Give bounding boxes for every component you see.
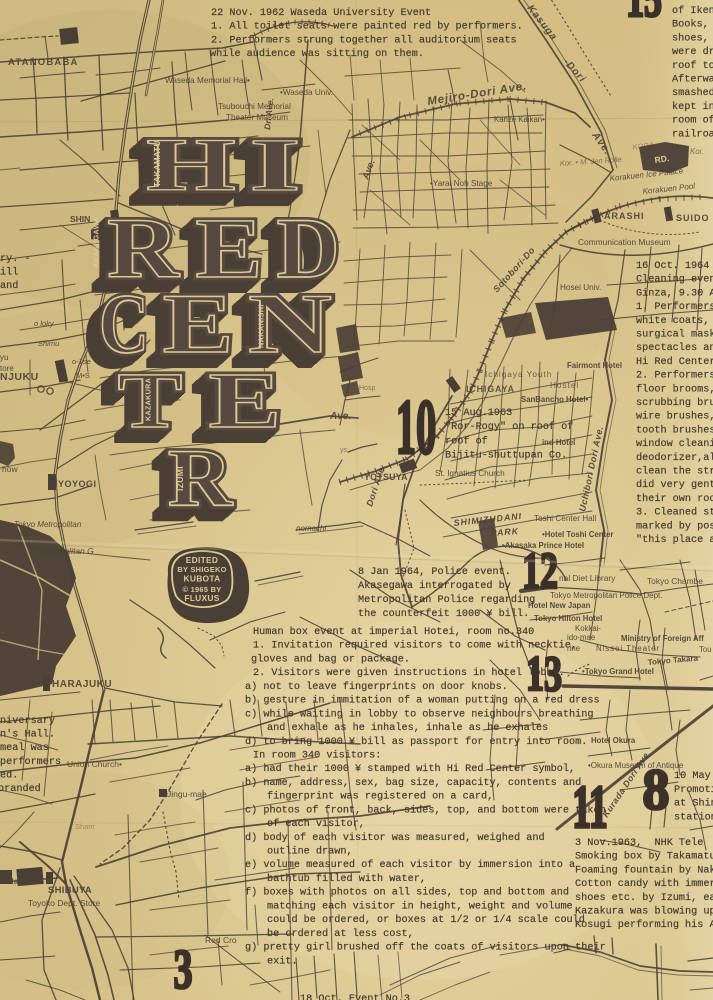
svg-text:IZUMI: IZUMI: [175, 466, 185, 491]
svg-text:o loky: o loky: [34, 319, 55, 328]
svg-text:Toshi Center Hall: Toshi Center Hall: [534, 514, 597, 523]
svg-text:yu: yu: [0, 353, 8, 362]
svg-text:3: 3: [173, 939, 192, 1000]
svg-text:I: I: [249, 124, 301, 206]
svg-text:ARASHI: ARASHI: [604, 211, 645, 221]
svg-text:FLUXUS: FLUXUS: [184, 593, 219, 603]
svg-text:HARAJUKU: HARAJUKU: [52, 679, 112, 690]
svg-text:Union Church•: Union Church•: [67, 759, 122, 769]
svg-text:Tokyo Metropolitan: Tokyo Metropolitan: [14, 520, 82, 529]
svg-text:YOTSUYA: YOTSUYA: [364, 472, 408, 482]
svg-text:ATANOBABA: ATANOBABA: [8, 57, 79, 68]
svg-text:Nissei Theater: Nissei Theater: [596, 644, 660, 653]
svg-text:Hostel: Hostel: [550, 381, 579, 390]
svg-text:ind Hotel: ind Hotel: [542, 438, 575, 447]
svg-text:SanBancho Hotel•: SanBancho Hotel•: [521, 395, 589, 404]
svg-text:E: E: [209, 357, 282, 445]
svg-text:C: C: [99, 276, 149, 371]
svg-text:KAZAKURA: KAZAKURA: [144, 378, 153, 421]
svg-text:Fairmont Hotel: Fairmont Hotel: [567, 361, 622, 370]
svg-text:NJUKU: NJUKU: [0, 371, 39, 383]
svg-text:12: 12: [522, 541, 558, 599]
svg-text:YOYOGI: YOYOGI: [58, 479, 97, 489]
svg-text:Tsubouchi Memorial: Tsubouchi Memorial: [218, 102, 291, 111]
svg-text:Ministry of Foreign Aff: Ministry of Foreign Aff: [621, 634, 704, 643]
svg-text:Waseda Memorial Hall•: Waseda Memorial Hall•: [165, 76, 250, 85]
svg-text:o Har 8: o Har 8: [0, 876, 29, 886]
svg-text:Tokyo Hilton Hotel: Tokyo Hilton Hotel: [534, 614, 602, 623]
svg-text:PARK: PARK: [490, 526, 519, 538]
svg-text:useum: useum: [14, 529, 38, 538]
svg-text:15: 15: [626, 0, 662, 28]
svg-text:•Hotel Toshi Center: •Hotel Toshi Center: [542, 530, 613, 539]
svg-text:Ichigaya Youth: Ichigaya Youth: [485, 370, 552, 379]
svg-text:Hosei Univ.: Hosei Univ.: [560, 283, 601, 292]
svg-text:10: 10: [396, 385, 437, 470]
svg-text:ICHIGAYA: ICHIGAYA: [466, 384, 515, 394]
svg-text:TAKAMATU: TAKAMATU: [153, 140, 162, 187]
svg-text:Tou: Tou: [699, 645, 712, 654]
svg-text:•Waseda Univ.: •Waseda Univ.: [280, 88, 333, 97]
svg-text:nal Diet Library: nal Diet Library: [559, 573, 616, 583]
svg-text:Red Cro: Red Cro: [205, 935, 237, 945]
svg-text:KUBOTA: KUBOTA: [184, 574, 221, 584]
svg-text:EDITED: EDITED: [186, 555, 219, 565]
svg-text:Tokyo Metropolitan Police Dept: Tokyo Metropolitan Police Dept.: [550, 591, 663, 600]
svg-text:Kor.: Kor.: [690, 147, 704, 156]
svg-text:Communication Museum: Communication Museum: [578, 237, 671, 247]
svg-text:AKASEGAWA: AKASEGAWA: [92, 216, 101, 268]
svg-text:Jingu-mae: Jingu-mae: [167, 789, 207, 799]
svg-text:RD.: RD.: [654, 153, 670, 165]
svg-text:St. Ignatius Church: St. Ignatius Church: [435, 469, 505, 478]
svg-text:Sham: Sham: [75, 822, 95, 831]
svg-text:•Yarai Noh Stage: •Yarai Noh Stage: [430, 179, 493, 188]
svg-text:ys: ys: [340, 447, 348, 454]
svg-text:8: 8: [643, 758, 670, 822]
svg-text:Shimu: Shimu: [38, 339, 60, 348]
svg-text:Metropolitan G: Metropolitan G: [38, 546, 94, 556]
svg-text:Ave.: Ave.: [329, 411, 351, 422]
svg-text:Toyoko Dept. Store: Toyoko Dept. Store: [28, 898, 101, 908]
svg-text:SHIN: SHIN: [70, 214, 90, 224]
svg-text:NAKANISHI: NAKANISHI: [257, 304, 266, 348]
svg-text:Hotel Okura: Hotel Okura: [591, 736, 636, 745]
svg-text:Kokkai-: Kokkai-: [575, 624, 601, 633]
svg-text:how: how: [2, 464, 18, 474]
svg-text:SUIDO: SUIDO: [676, 213, 710, 223]
svg-text:Hosp: Hosp: [359, 385, 375, 392]
svg-text:Tokyo Chambe: Tokyo Chambe: [647, 576, 703, 586]
svg-text:•Tokyo Grand Hotel: •Tokyo Grand Hotel: [582, 667, 654, 676]
svg-text:nomachi: nomachi: [296, 524, 326, 533]
svg-text:SHIBUYA: SHIBUYA: [48, 885, 92, 896]
